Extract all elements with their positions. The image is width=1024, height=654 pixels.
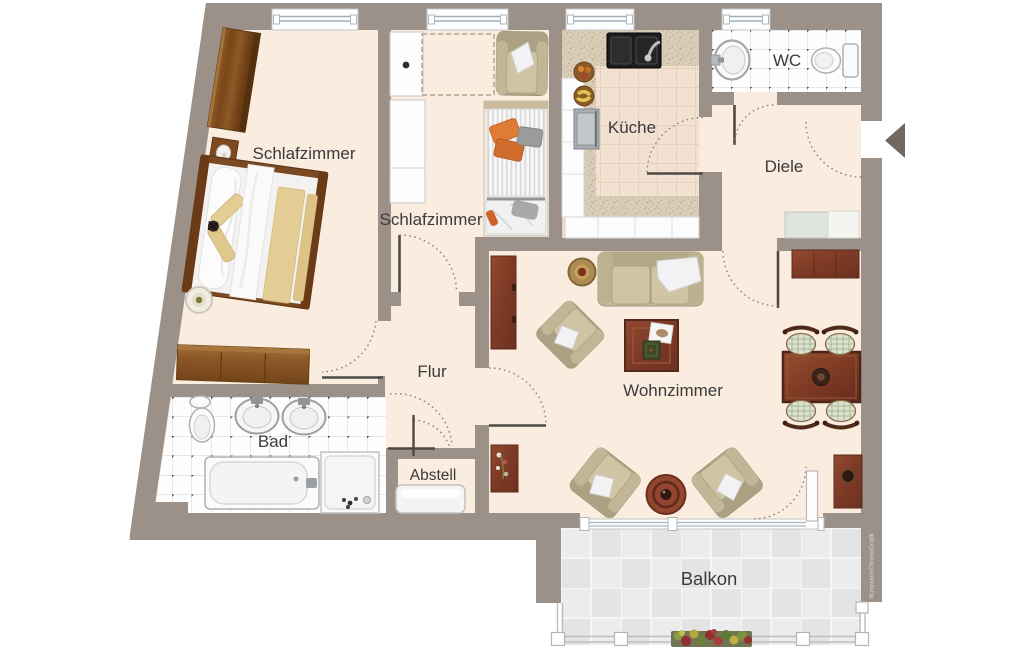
svg-text:Bad: Bad xyxy=(258,432,288,451)
svg-text:Wohnzimmer: Wohnzimmer xyxy=(623,381,723,400)
svg-text:Schlafzimmer: Schlafzimmer xyxy=(253,144,356,163)
svg-text:Schlafzimmer: Schlafzimmer xyxy=(380,210,483,229)
svg-text:Abstell: Abstell xyxy=(410,467,457,484)
svg-text:Küche: Küche xyxy=(608,118,656,137)
svg-text:Diele: Diele xyxy=(765,157,804,176)
svg-text:Flur: Flur xyxy=(417,362,447,381)
svg-text:WC: WC xyxy=(773,51,801,70)
svg-text:Illustration©ImmoGrafik: Illustration©ImmoGrafik xyxy=(868,532,876,599)
svg-text:Balkon: Balkon xyxy=(681,568,738,589)
